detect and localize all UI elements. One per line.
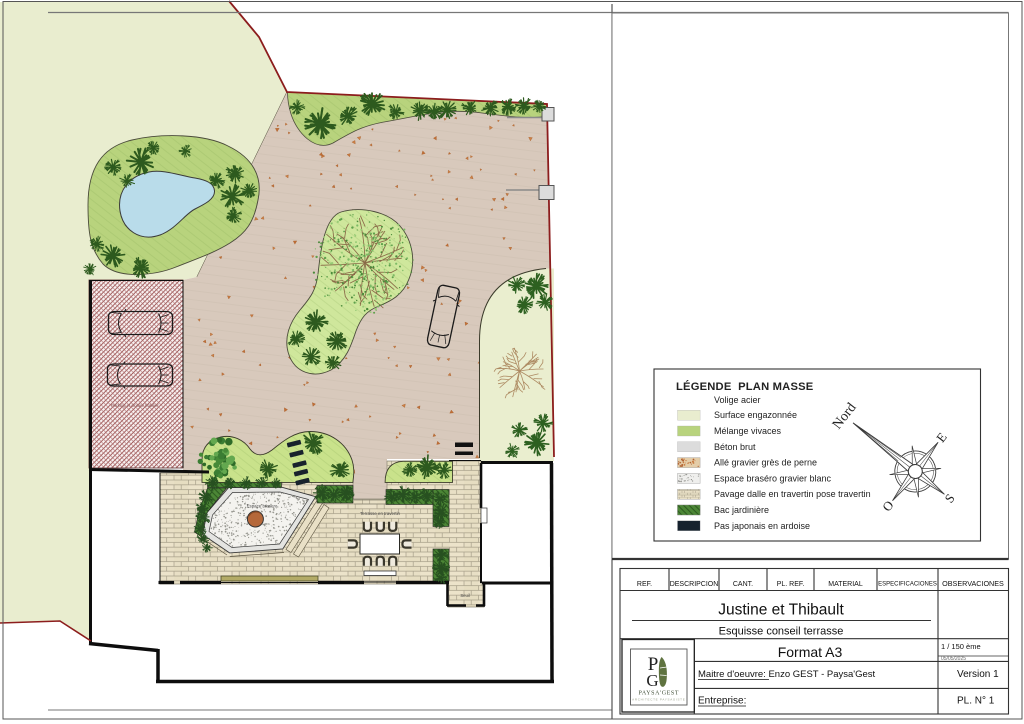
svg-text:Esquisse conseil terrasse: Esquisse conseil terrasse (719, 626, 844, 638)
svg-text:Justine et Thibault: Justine et Thibault (718, 602, 844, 619)
svg-text:PAYSA'GEST: PAYSA'GEST (638, 691, 679, 697)
svg-text:Allé gravier grès de perne: Allé gravier grès de perne (714, 458, 817, 468)
svg-text:Parking et cloture hotelier: Parking et cloture hotelier (111, 403, 159, 408)
svg-text:Terrasse en travertin: Terrasse en travertin (360, 511, 401, 516)
svg-text:Surface engazonnée: Surface engazonnée (714, 410, 797, 420)
svg-text:PL. N° 1: PL. N° 1 (957, 696, 995, 707)
svg-text:Volige acier: Volige acier (714, 395, 761, 405)
svg-text:Seuil: Seuil (460, 593, 469, 598)
svg-text:Entreprise:: Entreprise: (698, 696, 746, 707)
svg-text:DESCRIPCION: DESCRIPCION (670, 581, 719, 588)
svg-text:Pavage dalle en travertin pose: Pavage dalle en travertin pose travertin (714, 489, 871, 499)
svg-text:Version 1: Version 1 (957, 669, 999, 680)
svg-text:Mélange vivaces: Mélange vivaces (714, 426, 782, 436)
svg-text:05/05/2025: 05/05/2025 (941, 656, 966, 662)
svg-text:CANT.: CANT. (733, 581, 753, 588)
svg-text:ESPECIFICACIONES: ESPECIFICACIONES (878, 582, 937, 588)
svg-text:G: G (646, 671, 658, 690)
svg-text:Bac jardinière: Bac jardinière (714, 505, 769, 515)
svg-text:1 / 150 ème: 1 / 150 ème (941, 642, 981, 651)
svg-text:REF.: REF. (637, 581, 652, 588)
svg-text:Maitre d'oeuvre: Enzo GEST - P: Maitre d'oeuvre: Enzo GEST - Paysa'Gest (698, 669, 876, 680)
svg-text:Format A3: Format A3 (778, 644, 843, 660)
svg-text:MATERIAL: MATERIAL (828, 581, 863, 588)
svg-text:Espace brasero: Espace brasero (247, 504, 278, 509)
svg-text:Béton brut: Béton brut (714, 442, 756, 452)
svg-text:LÉGENDE PLAN MASSE: LÉGENDE PLAN MASSE (676, 380, 814, 393)
svg-text:OBSERVACIONES: OBSERVACIONES (942, 579, 1004, 588)
svg-text:PL. REF.: PL. REF. (777, 581, 805, 588)
svg-text:Espace braséro gravier blanc: Espace braséro gravier blanc (714, 473, 832, 483)
svg-text:ARCHITECTE PAYSAGISTE: ARCHITECTE PAYSAGISTE (632, 698, 685, 702)
svg-text:Pas japonais en ardoise: Pas japonais en ardoise (714, 521, 810, 531)
